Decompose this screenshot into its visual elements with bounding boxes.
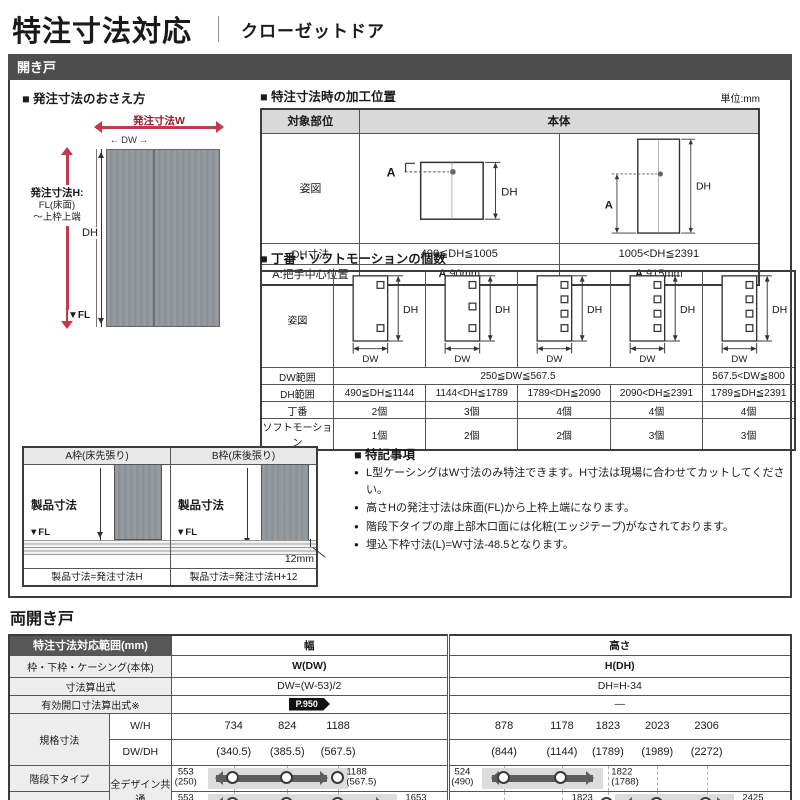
frame-b-figure: 製品寸法 ▼FL 12mm (171, 465, 316, 568)
hinge-row-dh: DH範囲 (261, 385, 333, 402)
range-min-label: 553(250) (175, 794, 197, 800)
dd-width-subvalues: (340.5) (385.5) (567.5) (171, 739, 448, 765)
order-height-label-sub2: 〜上枠上端 (24, 212, 90, 224)
handle-dot (657, 171, 662, 176)
floor-level-label: ▼FL (29, 527, 50, 538)
dd-stair-type-label: 階段下タイプ (9, 765, 109, 791)
frame-b-title: B枠(床後張り) (171, 448, 316, 465)
hinge-row-count: 丁番 (261, 402, 333, 419)
dd-height-formula: DH=H-34 (448, 677, 791, 695)
dd-dwdh-label: DW/DH (109, 739, 171, 765)
stock-point (554, 771, 567, 784)
frame-a-title: A枠(床先張り) (24, 448, 170, 465)
dd-frame-row-label: 枠・下枠・ケーシング(本体) (9, 655, 171, 677)
frame-a-caption: 製品寸法=発注寸法H (24, 568, 170, 585)
dd-standard-type-label: 標準タイプ (9, 791, 109, 800)
dd-open-row-label: 有効開口寸法算出式※ (9, 695, 171, 713)
section-title-double-door: 両開き戸 (10, 605, 800, 629)
hinged-door-panel: ■ 発注寸法のおさえ方 発注寸法W DW 発注寸法H: FL(床面) 〜上枠上端… (8, 80, 792, 598)
hinge-count-cell: 4個 (518, 402, 610, 419)
dw-range-last: 567.5<DW≦800 (703, 368, 795, 385)
range-max-label: 1188(567.5) (346, 768, 376, 789)
product-dimension-line (100, 468, 101, 540)
hinge-figure-3: DHDW (518, 271, 610, 368)
product-dimension-label: 製品寸法 (178, 497, 224, 513)
svg-text:DH: DH (403, 304, 418, 316)
range-min-label: 553(250) (175, 768, 197, 789)
svg-text:DW: DW (639, 354, 655, 364)
stock-point (280, 771, 293, 784)
range-min-label: 524(490) (451, 768, 473, 789)
hinge-figure-5: DHDW (703, 271, 795, 368)
range-max-label: 1653(800) (405, 794, 427, 800)
hinge-count-cell: 3個 (426, 402, 518, 419)
range-max-label: 1822(1788) (611, 768, 638, 789)
a-label: A (387, 165, 396, 179)
order-height-label: 発注寸法H: FL(床面) 〜上枠上端 (24, 185, 90, 226)
hinge-door-diagram: DHDW (334, 272, 426, 364)
product-dimension-line (247, 468, 248, 546)
hinge-figure-4: DHDW (610, 271, 702, 368)
dd-calc-row-label: 寸法算出式 (9, 677, 171, 695)
dd-height-symbol: H(DH) (448, 655, 791, 677)
dw-dimension-label: DW (106, 135, 152, 146)
dd-height-standard-range: 1823(1789) 2425(2391) (448, 791, 791, 800)
tall-door-diagram: A DH (560, 134, 759, 240)
dd-height-header: 高さ (448, 635, 791, 655)
stock-point-open (331, 771, 344, 784)
dh-dimension-label: DH (80, 227, 100, 239)
hinge-figure-2: DHDW (426, 271, 518, 368)
dd-open-height-cell: — (448, 695, 791, 713)
dd-width-values: 734 824 1188 (171, 713, 448, 739)
order-dimension-heading: ■ 発注寸法のおさえ方 (22, 88, 257, 107)
svg-text:DH: DH (772, 304, 787, 316)
page-subtitle: クローゼットドア (241, 17, 385, 42)
dh-range-cell: 1789≦DH≦2391 (703, 385, 795, 402)
offset-label: 12mm (285, 553, 314, 565)
floor-hatch (24, 540, 170, 555)
door-panel-image (106, 149, 220, 327)
svg-text:DW: DW (362, 354, 378, 364)
dd-height-stair-range: 524(490) 1822(1788) (448, 765, 791, 791)
dh-range-cell: 2090<DH≦2391 (610, 385, 702, 402)
hinge-heading: ■ 丁番・ソフトモーションの個数 (260, 248, 796, 267)
order-dimension-diagram: 発注寸法W DW 発注寸法H: FL(床面) 〜上枠上端 DH ▼FL (22, 113, 257, 338)
order-height-label-sub1: FL(床面) (24, 200, 90, 212)
unit-label: 単位:mm (721, 90, 760, 105)
frame-type-diagrams: A枠(床先張り) 製品寸法 ▼FL 製品寸法=発注寸法H B枠(床後張り) 製品… (22, 446, 318, 587)
note-item: 高さHの発注寸法は床面(FL)から上枠上端になります。 (354, 500, 794, 517)
dd-wh-label: W/H (109, 713, 171, 739)
dd-height-subvalues: (844) (1144) (1789) (1989) (2272) (448, 739, 791, 765)
dd-open-width-cell: P.950 (171, 695, 448, 713)
double-door-spec-table: 特注寸法対応範囲(mm) 幅 高さ 枠・下枠・ケーシング(本体) W(DW) H… (8, 634, 792, 800)
hinge-door-diagram: DHDW (426, 272, 518, 364)
dh-dimension-line (101, 149, 102, 327)
stock-point (226, 771, 239, 784)
dh-range-cell: 1144<DH≦1789 (426, 385, 518, 402)
svg-text:DH: DH (587, 304, 602, 316)
dw-range-main: 250≦DW≦567.5 (333, 368, 702, 385)
range-max-label: 2425(2391) (742, 794, 769, 800)
dd-width-symbol: W(DW) (171, 655, 448, 677)
processing-figure-small: A DH (359, 133, 559, 243)
note-item: 埋込下枠寸法(L)=W寸法-48.5となります。 (354, 537, 794, 554)
notes-heading: ■ 特記事項 (354, 444, 794, 463)
dd-standard-size-label: 規格寸法 (9, 713, 109, 765)
frame-a-panel: A枠(床先張り) 製品寸法 ▼FL 製品寸法=発注寸法H (24, 448, 170, 585)
order-width-label: 発注寸法W (96, 113, 222, 128)
order-height-label-main: 発注寸法H: (24, 187, 90, 200)
stock-point (497, 771, 510, 784)
hinge-figure-1: DHDW (333, 271, 425, 368)
product-dimension-label: 製品寸法 (31, 497, 77, 513)
svg-text:DH: DH (680, 304, 695, 316)
dd-width-header: 幅 (171, 635, 448, 655)
hinge-row-figure: 姿図 (261, 271, 333, 368)
a-label: A (604, 199, 612, 211)
hinge-count-cell: 4個 (703, 402, 795, 419)
door-panel-image (114, 465, 162, 540)
note-item: L型ケーシングはW寸法のみ特注できます。H寸法は現場に合わせてカットしてください… (354, 465, 794, 498)
page-title: 特注寸法対応 (12, 8, 192, 50)
order-dimension-block: ■ 発注寸法のおさえ方 発注寸法W DW 発注寸法H: FL(床面) 〜上枠上端… (22, 88, 257, 338)
door-panel-image (261, 465, 309, 546)
special-notes-block: ■ 特記事項 L型ケーシングはW寸法のみ特注できます。H寸法は現場に合わせてカッ… (354, 444, 794, 554)
hinge-count-cell: 2個 (333, 402, 425, 419)
hinge-row-dw: DW範囲 (261, 368, 333, 385)
processing-figure-tall: A DH (559, 133, 759, 243)
svg-text:DH: DH (495, 304, 510, 316)
page-header: 特注寸法対応 クローゼットドア (0, 0, 800, 48)
dh-label: DH (501, 186, 517, 198)
processing-row-figure: 姿図 (261, 133, 359, 243)
section-bar-hinged-door: 開き戸 (8, 54, 792, 80)
dd-width-standard-range: 553(250) 1653(800) (171, 791, 448, 800)
short-door-diagram: A DH (360, 134, 559, 240)
frame-b-caption: 製品寸法=発注寸法H+12 (171, 568, 316, 585)
stock-point-open (600, 797, 613, 800)
floor-level-label: ▼FL (176, 527, 197, 538)
processing-col-body: 本体 (359, 109, 759, 133)
hinge-table: 姿図 DHDW DHDW DHDW DHDW DHDW DW範囲 250≦DW≦… (260, 270, 796, 451)
order-height-arrow (66, 149, 69, 327)
handle-dot (450, 169, 456, 175)
frame-b-panel: B枠(床後張り) 製品寸法 ▼FL 12mm 製品寸法=発注寸法H+12 (170, 448, 316, 585)
floor-level-label: ▼FL (68, 310, 90, 321)
frame-a-figure: 製品寸法 ▼FL (24, 465, 170, 568)
note-item: 階段下タイプの扉上部木口面には化粧(エッジテープ)がなされております。 (354, 519, 794, 536)
processing-heading: ■ 特注寸法時の加工位置 (260, 86, 396, 105)
dh-range-cell: 1789<DH≦2090 (518, 385, 610, 402)
hinge-door-diagram: DHDW (703, 272, 795, 364)
dd-common-label: 全デザイン共通 (109, 765, 171, 800)
range-min-label: 1823(1789) (565, 794, 592, 800)
dh-label: DH (696, 181, 711, 192)
hinge-door-diagram: DHDW (518, 272, 610, 364)
processing-col-part: 対象部位 (261, 109, 359, 133)
dd-width-formula: DW=(W-53)/2 (171, 677, 448, 695)
catalog-page: 特注寸法対応 クローゼットドア 開き戸 ■ 発注寸法のおさえ方 発注寸法W DW… (0, 0, 800, 800)
dd-width-stair-range: 553(250) 1188(567.5) (171, 765, 448, 791)
hinge-door-diagram: DHDW (611, 272, 703, 364)
svg-text:DW: DW (547, 354, 563, 364)
door-seam-line (153, 150, 155, 326)
dd-height-values: 878 1178 1823 2023 2306 (448, 713, 791, 739)
svg-text:DW: DW (455, 354, 471, 364)
dd-range-header: 特注寸法対応範囲(mm) (9, 635, 171, 655)
dh-range-cell: 490≦DH≦1144 (333, 385, 425, 402)
title-divider (218, 16, 219, 42)
svg-text:DW: DW (732, 354, 748, 364)
page-ref-badge: P.950 (289, 698, 330, 711)
hinge-count-block: ■ 丁番・ソフトモーションの個数 姿図 DHDW DHDW DHDW DHDW … (260, 248, 796, 451)
hinge-count-cell: 4個 (610, 402, 702, 419)
